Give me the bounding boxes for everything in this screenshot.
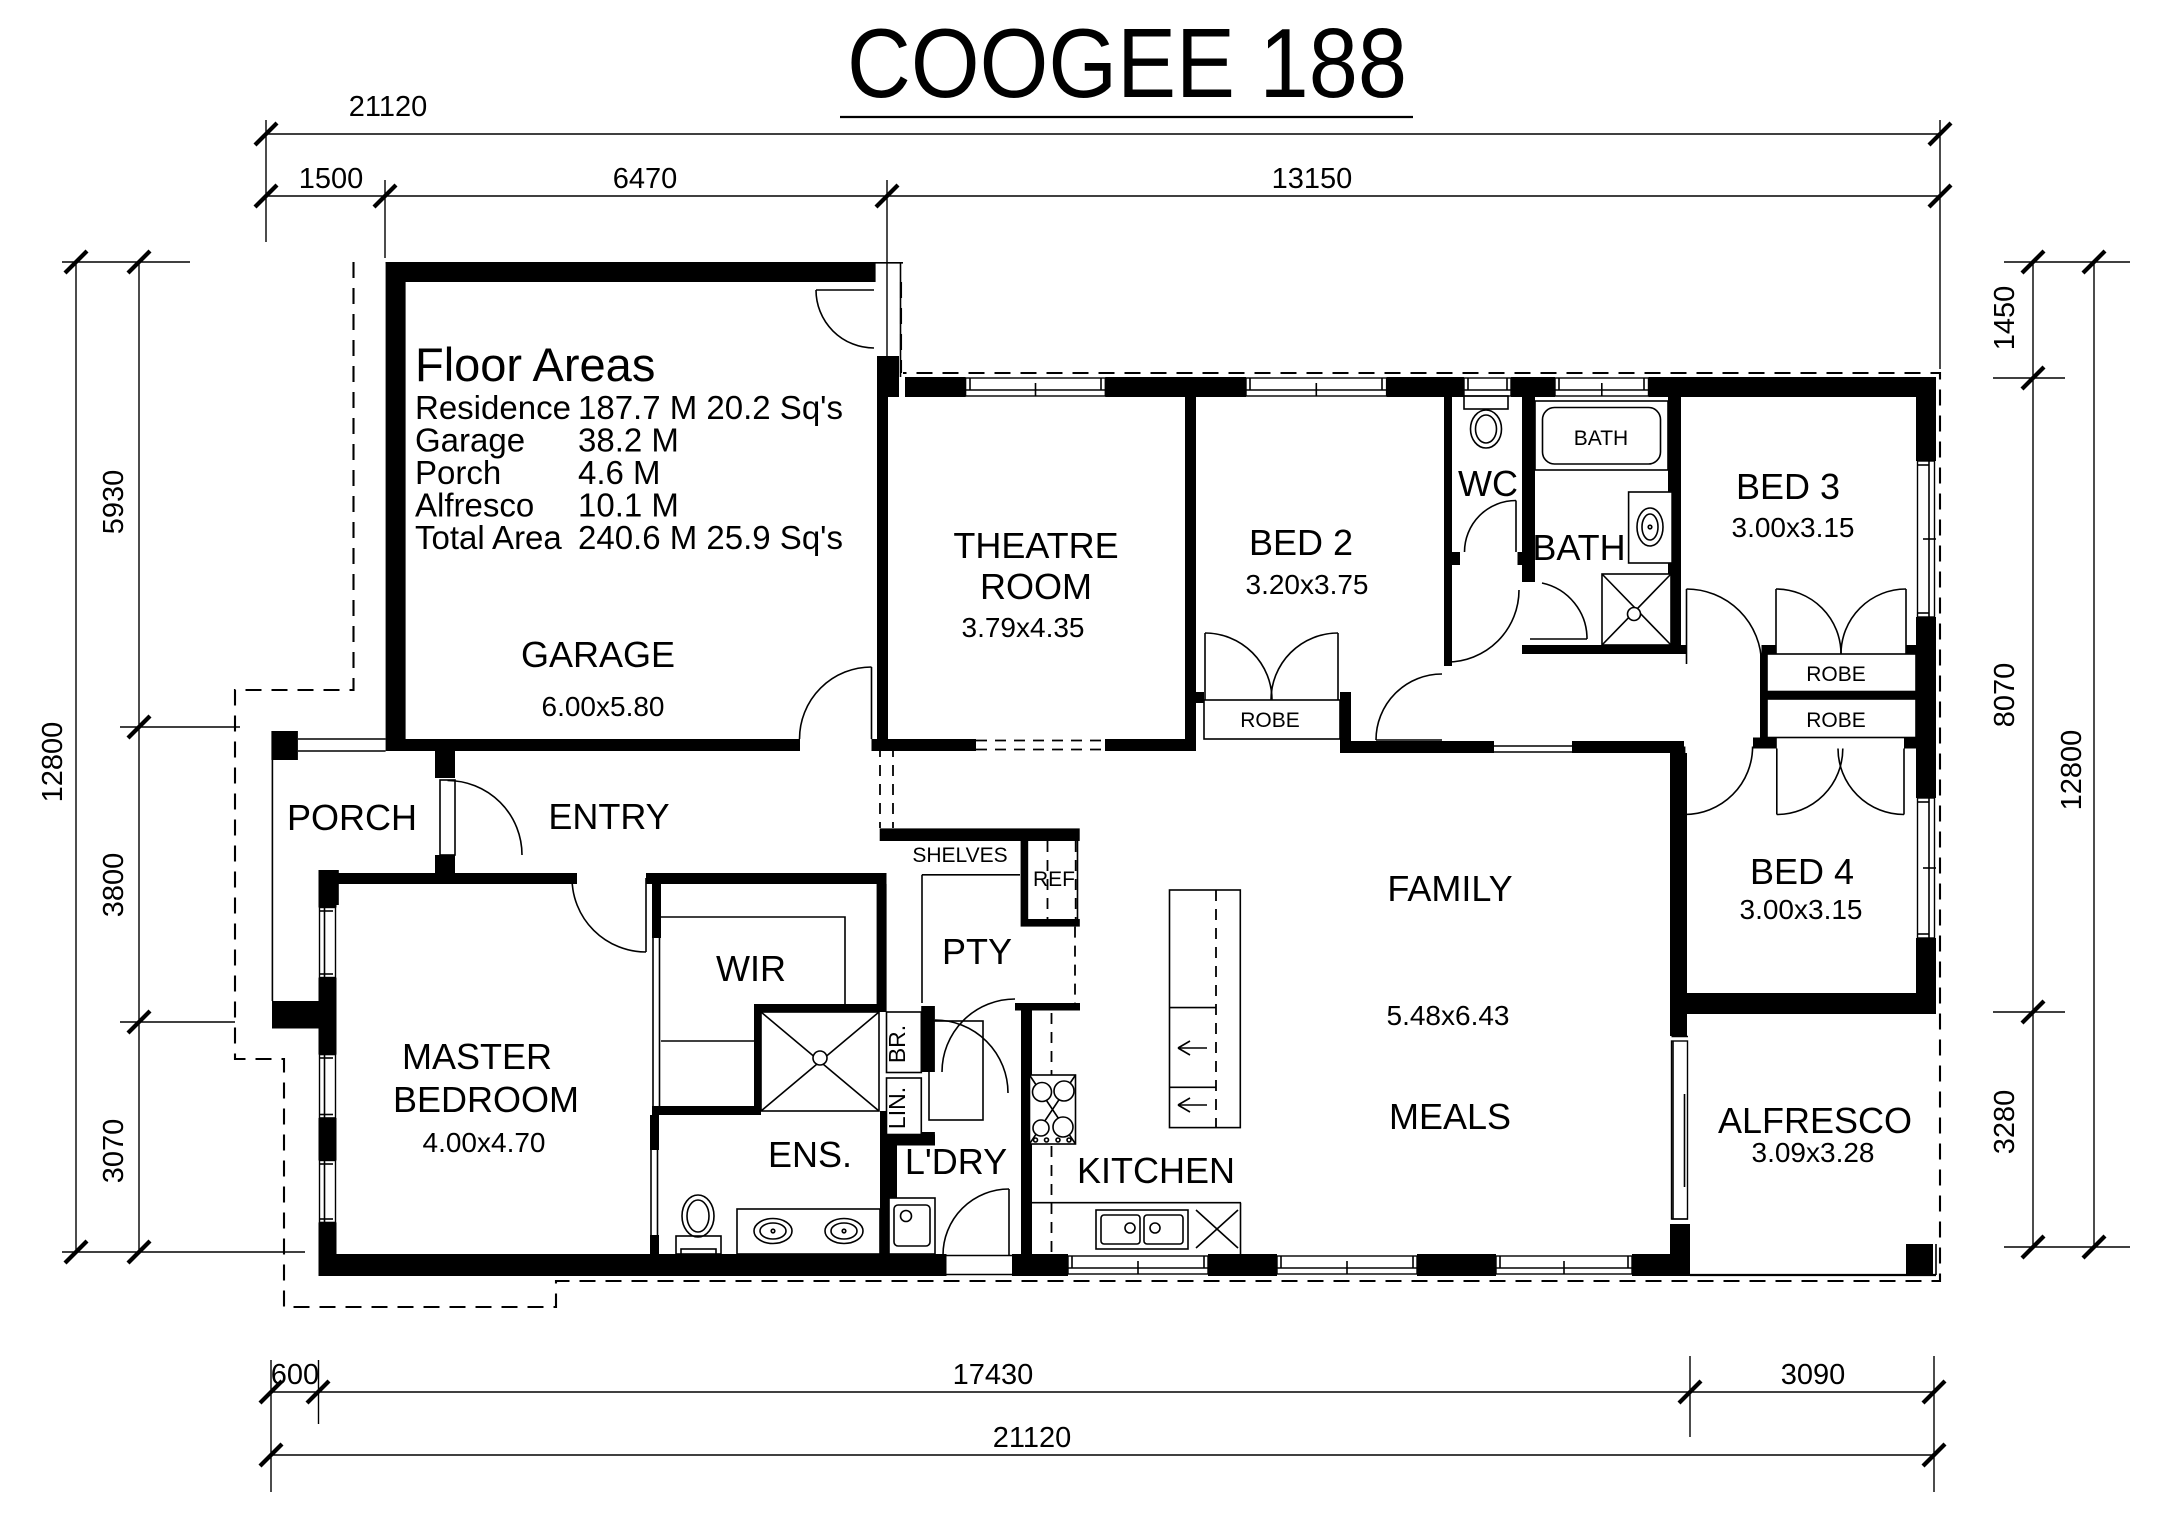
svg-text:BED 3: BED 3 <box>1736 466 1840 507</box>
svg-text:KITCHEN: KITCHEN <box>1077 1150 1235 1191</box>
svg-text:ROBE: ROBE <box>1240 709 1300 732</box>
svg-text:6470: 6470 <box>613 163 678 195</box>
svg-text:10.1 M: 10.1 M <box>578 487 679 524</box>
svg-text:3.00x3.15: 3.00x3.15 <box>1740 894 1863 925</box>
svg-text:187.7 M 20.2 Sq's: 187.7 M 20.2 Sq's <box>578 389 843 426</box>
svg-text:ALFRESCO: ALFRESCO <box>1718 1100 1912 1141</box>
svg-text:L'DRY: L'DRY <box>905 1141 1007 1182</box>
svg-text:3.00x3.15: 3.00x3.15 <box>1732 512 1855 543</box>
svg-text:17430: 17430 <box>953 1359 1034 1391</box>
svg-text:MEALS: MEALS <box>1389 1096 1511 1137</box>
svg-text:ROBE: ROBE <box>1806 709 1866 732</box>
svg-text:3800: 3800 <box>98 853 130 918</box>
svg-text:WC: WC <box>1458 463 1518 504</box>
svg-text:3090: 3090 <box>1781 1359 1846 1391</box>
svg-text:5.48x6.43: 5.48x6.43 <box>1387 1000 1510 1031</box>
svg-text:8070: 8070 <box>1989 663 2021 728</box>
svg-text:3070: 3070 <box>98 1119 130 1184</box>
svg-text:5930: 5930 <box>98 470 130 535</box>
svg-text:12800: 12800 <box>37 722 69 803</box>
svg-text:13150: 13150 <box>1272 163 1353 195</box>
svg-text:3.79x4.35: 3.79x4.35 <box>962 612 1085 643</box>
svg-text:Garage: Garage <box>415 422 525 459</box>
svg-text:WIR: WIR <box>716 948 786 989</box>
svg-text:Residence: Residence <box>415 389 571 426</box>
svg-text:1450: 1450 <box>1989 286 2021 351</box>
svg-text:GARAGE: GARAGE <box>521 634 675 675</box>
svg-text:21120: 21120 <box>993 1422 1072 1454</box>
svg-text:ROOM: ROOM <box>980 566 1092 607</box>
svg-text:Total Area: Total Area <box>415 519 562 556</box>
svg-text:FAMILY: FAMILY <box>1387 868 1512 909</box>
svg-text:4.6 M: 4.6 M <box>578 454 661 491</box>
svg-text:3.09x3.28: 3.09x3.28 <box>1752 1137 1875 1168</box>
svg-text:PORCH: PORCH <box>287 797 417 838</box>
svg-text:MASTER: MASTER <box>402 1036 552 1077</box>
svg-text:3.20x3.75: 3.20x3.75 <box>1246 569 1369 600</box>
svg-text:Alfresco: Alfresco <box>415 487 534 524</box>
svg-text:THEATRE: THEATRE <box>953 525 1118 566</box>
svg-text:BATH: BATH <box>1574 427 1628 450</box>
svg-text:LIN.: LIN. <box>884 1087 910 1129</box>
svg-text:ROBE: ROBE <box>1806 663 1866 686</box>
svg-text:ENS.: ENS. <box>768 1134 852 1175</box>
svg-text:3280: 3280 <box>1989 1090 2021 1155</box>
svg-text:PTY: PTY <box>942 931 1012 972</box>
svg-text:21120: 21120 <box>349 91 428 123</box>
svg-text:SHELVES: SHELVES <box>912 844 1007 867</box>
svg-text:BED 2: BED 2 <box>1249 522 1353 563</box>
svg-text:Porch: Porch <box>415 454 501 491</box>
svg-text:ENTRY: ENTRY <box>548 796 669 837</box>
svg-text:4.00x4.70: 4.00x4.70 <box>423 1127 546 1158</box>
svg-text:BR.: BR. <box>884 1025 910 1063</box>
svg-text:Floor Areas: Floor Areas <box>415 338 655 391</box>
svg-text:240.6 M 25.9 Sq's: 240.6 M 25.9 Sq's <box>578 519 843 556</box>
svg-text:BEDROOM: BEDROOM <box>393 1079 579 1120</box>
svg-text:1500: 1500 <box>299 163 364 195</box>
svg-text:BED 4: BED 4 <box>1750 851 1854 892</box>
svg-text:12800: 12800 <box>2056 730 2088 811</box>
svg-text:600: 600 <box>271 1359 319 1391</box>
svg-text:38.2 M: 38.2 M <box>578 422 679 459</box>
svg-text:COOGEE 188: COOGEE 188 <box>847 8 1407 118</box>
svg-text:6.00x5.80: 6.00x5.80 <box>542 691 665 722</box>
svg-text:BATH: BATH <box>1532 527 1625 568</box>
svg-text:REF: REF <box>1033 868 1075 891</box>
